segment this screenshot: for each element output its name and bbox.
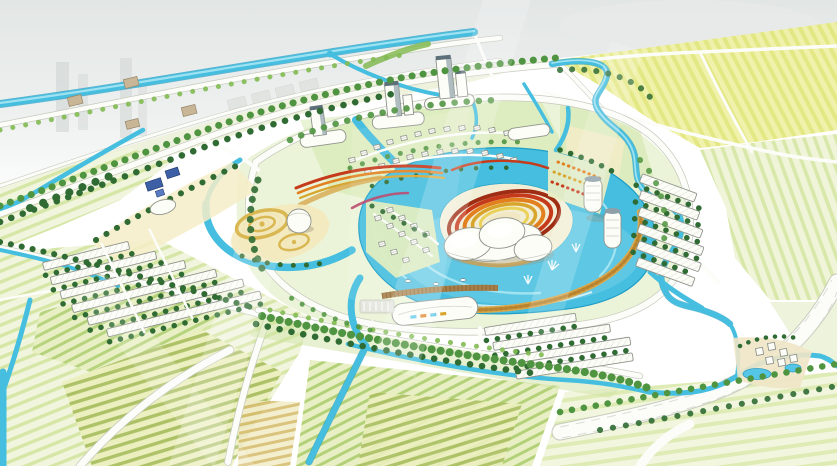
masterplan-canvas	[0, 0, 837, 466]
field-south-olive	[358, 392, 522, 466]
boat	[460, 279, 466, 282]
masterplan-illustration: Hand-drawn aerial masterplan illustratio…	[0, 0, 837, 466]
resort-pool	[743, 369, 771, 380]
